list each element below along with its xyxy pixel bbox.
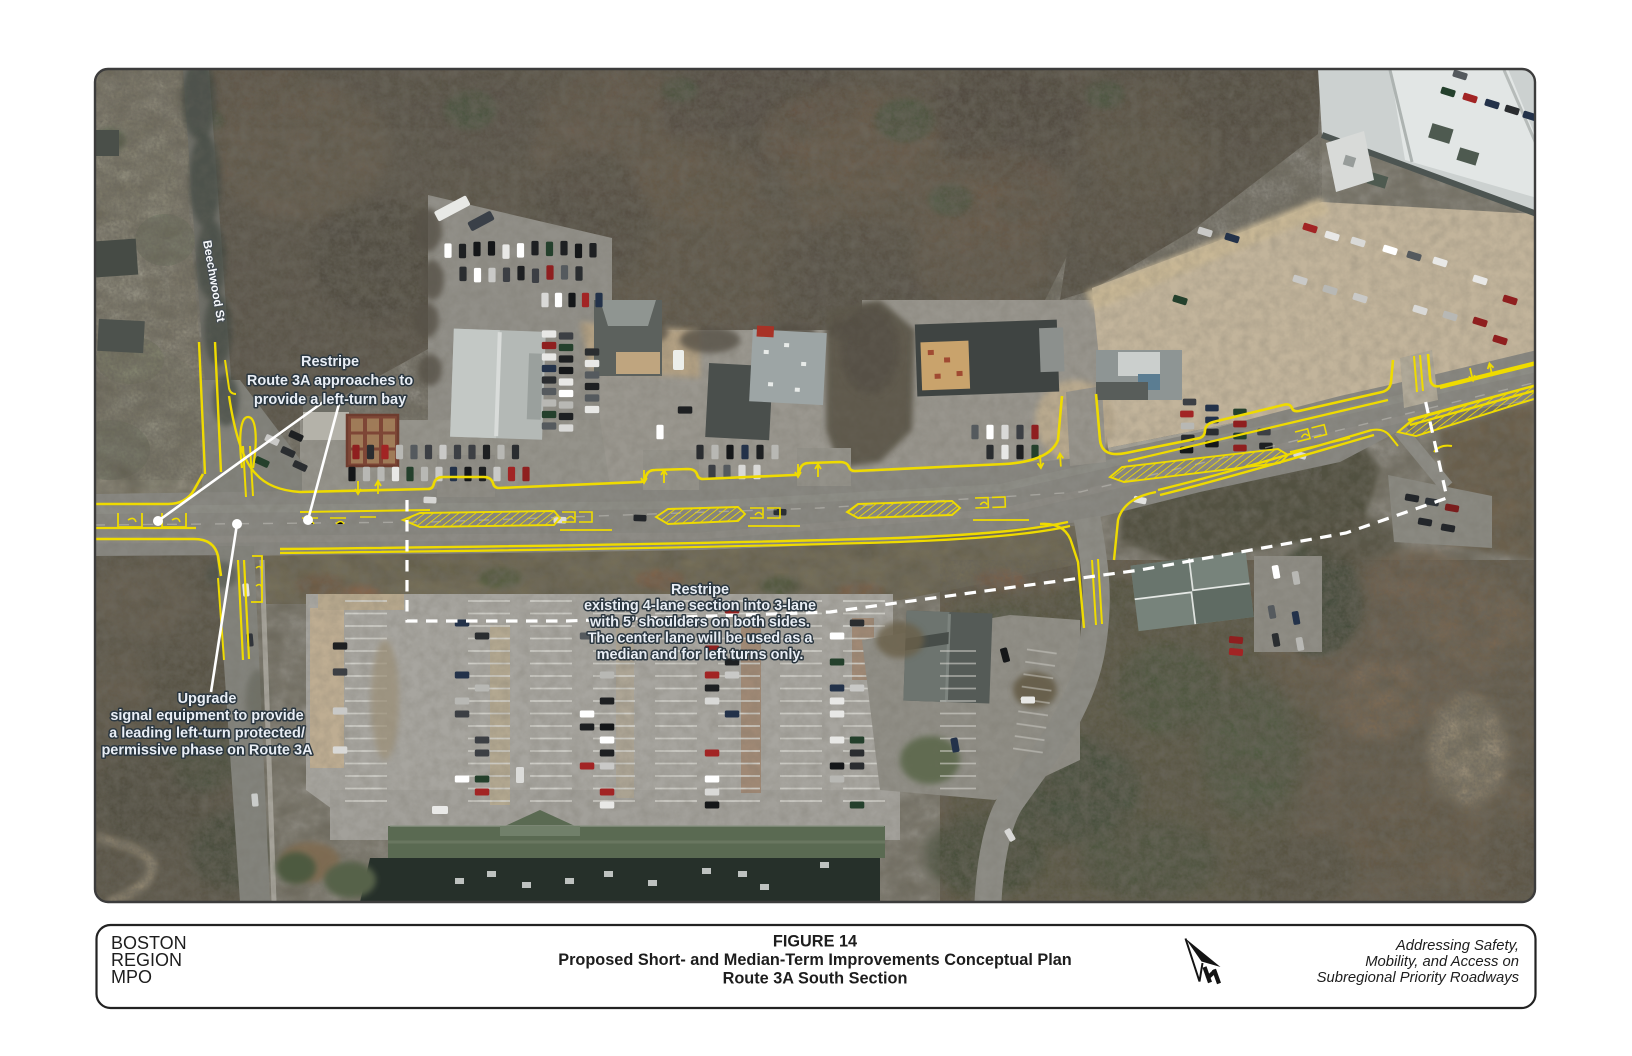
svg-text:Route 3A South Section: Route 3A South Section: [723, 970, 908, 988]
svg-text:Proposed Short- and Median-Ter: Proposed Short- and Median-Term Improvem…: [558, 951, 1072, 969]
svg-text:Restripe: Restripe: [671, 582, 729, 598]
svg-text:signal equipment to provide: signal equipment to provide: [110, 708, 303, 724]
svg-text:permissive phase on Route 3A: permissive phase on Route 3A: [101, 743, 313, 759]
svg-text:Route 3A approaches to: Route 3A approaches to: [247, 373, 413, 389]
svg-text:Mobility, and Access on: Mobility, and Access on: [1365, 954, 1519, 970]
svg-text:with 5’ shoulders on both side: with 5’ shoulders on both sides.: [589, 614, 810, 630]
svg-text:a leading left-turn protected/: a leading left-turn protected/: [109, 725, 305, 741]
svg-text:provide a left-turn bay: provide a left-turn bay: [254, 392, 406, 408]
svg-text:Restripe: Restripe: [301, 354, 359, 370]
svg-text:Upgrade: Upgrade: [178, 691, 237, 707]
svg-text:Subregional Priority Roadways: Subregional Priority Roadways: [1317, 970, 1520, 986]
svg-text:The center lane will be used a: The center lane will be used as a: [588, 631, 814, 647]
svg-text:existing 4-lane section into 3: existing 4-lane section into 3-lane: [584, 598, 816, 614]
svg-text:FIGURE 14: FIGURE 14: [773, 933, 857, 951]
svg-text:median and for left turns only: median and for left turns only.: [597, 647, 804, 663]
svg-text:MPO: MPO: [111, 967, 152, 987]
svg-text:Addressing Safety,: Addressing Safety,: [1395, 938, 1519, 954]
